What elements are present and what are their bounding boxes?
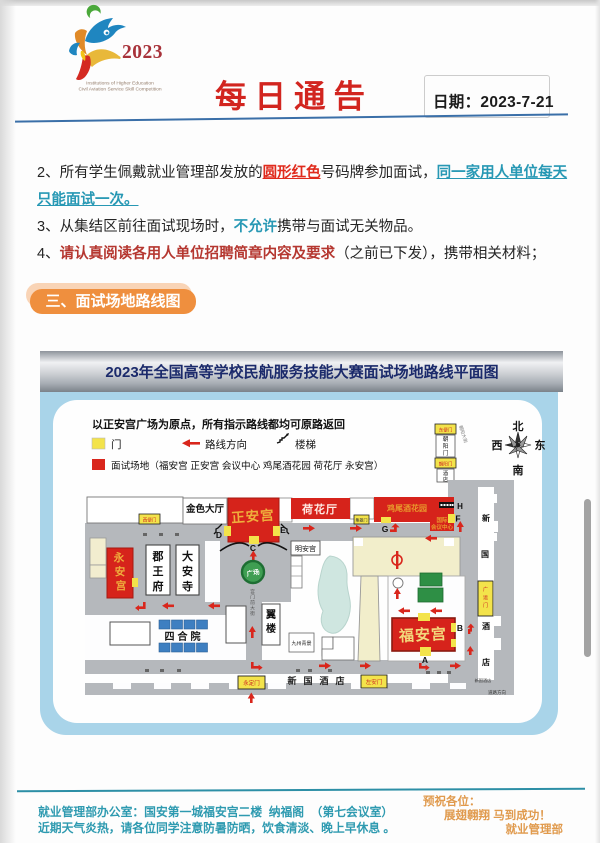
svg-text:楼梯: 楼梯: [295, 438, 316, 451]
svg-text:门: 门: [111, 438, 122, 451]
svg-text:2023: 2023: [122, 42, 163, 63]
svg-text:B: B: [457, 623, 463, 633]
svg-text:楼: 楼: [266, 622, 276, 635]
svg-text:西: 西: [492, 439, 503, 452]
svg-text:店: 店: [482, 657, 490, 667]
svg-text:新: 新: [287, 675, 296, 686]
svg-text:新: 新: [482, 513, 490, 523]
svg-text:G: G: [382, 524, 389, 534]
svg-text:福安宫: 福安宫: [398, 625, 448, 646]
svg-text:国: 国: [303, 676, 312, 686]
svg-text:集散门: 集散门: [356, 517, 368, 523]
svg-text:永: 永: [113, 551, 125, 564]
svg-text:H: H: [457, 502, 463, 511]
svg-text:九州青景: 九州青景: [291, 640, 311, 647]
svg-text:门: 门: [443, 449, 449, 457]
svg-text:北: 北: [513, 419, 524, 433]
svg-text:酒: 酒: [319, 675, 328, 686]
svg-text:朝: 朝: [443, 435, 449, 443]
svg-text:阳: 阳: [443, 442, 449, 450]
svg-text:翼: 翼: [265, 609, 276, 621]
svg-text:Institutions of Higher Educati: Institutions of Higher Education: [86, 81, 154, 87]
svg-text:2023年全国高等学校民航服务技能大赛面试场地路线平面图: 2023年全国高等学校民航服务技能大赛面试场地路线平面图: [105, 363, 498, 381]
svg-text:A: A: [422, 655, 428, 665]
svg-text:路线方向: 路线方向: [205, 438, 247, 451]
svg-text:广: 广: [483, 586, 488, 593]
svg-text:安: 安: [182, 564, 193, 578]
svg-text:南: 南: [513, 463, 524, 477]
svg-text:D: D: [216, 530, 222, 540]
svg-text:店: 店: [335, 675, 344, 686]
svg-text:荷花厅: 荷花厅: [301, 502, 338, 516]
svg-text:酒: 酒: [482, 621, 490, 631]
svg-text:大: 大: [250, 605, 255, 612]
svg-text:金色大厅: 金色大厅: [185, 503, 225, 515]
svg-text:会议中心: 会议中心: [431, 523, 454, 531]
svg-text:东便门: 东便门: [439, 427, 453, 434]
svg-text:寺: 寺: [182, 579, 193, 593]
svg-text:面试场地（福安宫 正安宫 会议中心 鸡尾酒花园 荷花厅 永安: 面试场地（福安宫 正安宫 会议中心 鸡尾酒花园 荷花厅 永安宫）: [111, 460, 383, 472]
svg-text:朝阳门: 朝阳门: [439, 461, 453, 468]
svg-text:府: 府: [153, 579, 164, 593]
svg-text:东: 东: [535, 438, 546, 452]
svg-text:永定门: 永定门: [243, 679, 260, 687]
svg-text:E: E: [280, 525, 286, 535]
svg-text:四合院: 四合院: [165, 630, 204, 643]
svg-text:以正安宫广场为原点，所有指示路线都均可原路返回: 以正安宫广场为原点，所有指示路线都均可原路返回: [92, 417, 345, 431]
svg-text:新国酒店: 新国酒店: [475, 677, 492, 684]
svg-text:左安门: 左安门: [366, 678, 383, 686]
svg-text:运: 运: [483, 594, 488, 601]
svg-text:街: 街: [250, 610, 255, 617]
svg-text:宫: 宫: [250, 588, 255, 595]
svg-text:门: 门: [250, 594, 255, 601]
svg-text:道路方向: 道路方向: [488, 689, 506, 696]
svg-text:正安宫: 正安宫: [231, 507, 276, 526]
svg-text:店: 店: [443, 475, 448, 483]
svg-text:大: 大: [182, 549, 193, 563]
svg-text:国: 国: [481, 549, 489, 559]
svg-text:宫: 宫: [116, 579, 127, 592]
svg-text:郡: 郡: [152, 550, 164, 563]
svg-text:王: 王: [153, 565, 164, 578]
svg-text:酒: 酒: [443, 469, 448, 477]
svg-text:国际: 国际: [436, 516, 448, 524]
svg-text:安: 安: [115, 565, 126, 578]
svg-text:前: 前: [250, 599, 255, 606]
svg-text:西便门: 西便门: [143, 517, 157, 524]
svg-text:Civil Aviation Service Skill C: Civil Aviation Service Skill Competition: [78, 87, 161, 93]
svg-text:鸡尾酒花园: 鸡尾酒花园: [386, 503, 427, 513]
svg-text:门: 门: [483, 602, 488, 609]
svg-text:明安宫: 明安宫: [295, 544, 316, 553]
